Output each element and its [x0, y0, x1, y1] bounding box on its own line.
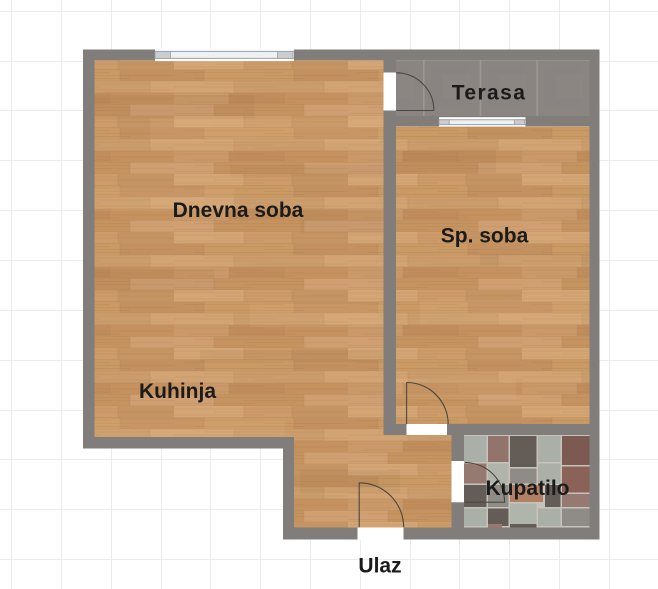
svg-text:Terasa: Terasa — [452, 82, 527, 105]
svg-text:Kuhinja: Kuhinja — [139, 380, 216, 403]
svg-text:Ulaz: Ulaz — [358, 554, 401, 577]
svg-text:Dnevna soba: Dnevna soba — [173, 199, 304, 222]
svg-text:Kupatilo: Kupatilo — [486, 477, 570, 500]
svg-text:Sp. soba: Sp. soba — [441, 225, 529, 248]
